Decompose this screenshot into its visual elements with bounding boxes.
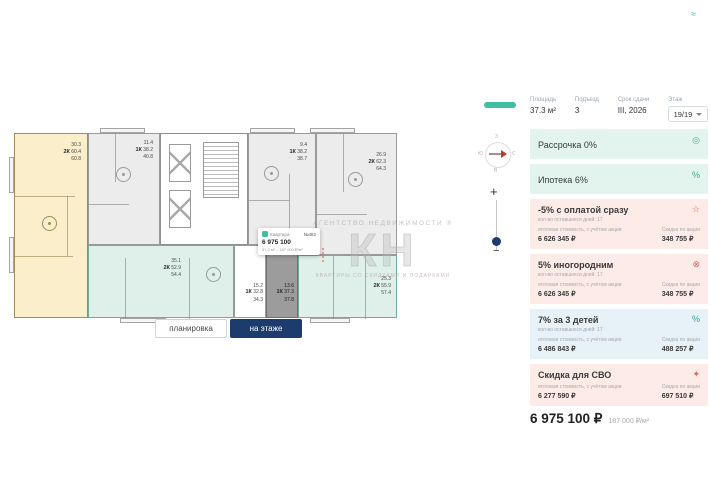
promo-row-svo[interactable]: Скидка для СВО итоговая стоимость, с учё… [530, 364, 708, 406]
promo-discount-col: Скидка по акции 697 510 ₽ [662, 384, 700, 400]
row-title: 5% иногородним [538, 260, 700, 270]
summary-entrance: Подъезд 3 [575, 97, 599, 115]
elevator-shaft [169, 190, 191, 228]
progress-pill [484, 102, 516, 108]
price-label: итоговая стоимость, с учётом акции [538, 337, 622, 343]
area-value: 37.3 м² [530, 106, 556, 115]
compass-west: З [495, 134, 498, 140]
percent-icon: % [692, 315, 700, 324]
compass-needle-head [501, 150, 507, 158]
discount-value: 488 257 ₽ [662, 345, 700, 353]
price-label: итоговая стоимость, с учётом акции [538, 384, 622, 390]
discount-value: 697 510 ₽ [662, 392, 700, 400]
zoom-out-button[interactable]: − [493, 245, 499, 257]
unit-total-area: 54.4 [163, 272, 181, 279]
interior-wall [89, 204, 129, 205]
interior-wall [333, 256, 334, 319]
apartment-sidebar: Площадь 37.3 м² Подъезд 3 Срок сдачи III… [530, 97, 708, 427]
mortgage-row[interactable]: Ипотека 6% % [530, 164, 708, 194]
unit-total-area: 38.7 [289, 156, 307, 163]
unit-type-area: 1К 38.2 [289, 149, 307, 156]
unit-total-area: 64.3 [368, 166, 386, 173]
tooltip-price: 6 975 100 [262, 239, 316, 246]
deadline-value: III, 2026 [618, 106, 649, 115]
total-price: 6 975 100 ₽ [530, 411, 602, 427]
deadline-label: Срок сдачи [618, 97, 649, 103]
unit-type-area: 2К 60.4 [63, 149, 81, 156]
installment-row[interactable]: Рассрочка 0% ◎ [530, 129, 708, 159]
unit-total-area: 37.8 [276, 297, 294, 304]
summary-floor: Этаж 19/19 [668, 97, 708, 122]
panorama-marker [116, 167, 131, 182]
tab-layout[interactable]: планировка [155, 319, 227, 338]
price-value: 6 626 345 ₽ [538, 290, 622, 298]
elevator-shaft [169, 144, 191, 182]
interior-wall [189, 258, 190, 319]
apartment-tooltip[interactable]: Квартира №482 6 975 100 37.3 м² – 187 00… [258, 228, 320, 255]
entrance-value: 3 [575, 106, 599, 115]
unit-type-area: 2К 62.3 [368, 159, 386, 166]
floor-plan: 30.3 2К 60.4 60.8 11.4 1К 38.2 40.8 [14, 133, 398, 318]
promo-row-nonresident[interactable]: 5% иногородним кол-во оставшихся дней: 1… [530, 254, 708, 304]
panorama-marker [206, 267, 221, 282]
interior-wall [249, 200, 289, 201]
days-left: кол-во оставшихся дней: 17 [538, 327, 700, 333]
tooltip-meta: 37.3 м² – 187 000 ₽/м² [262, 247, 316, 252]
promo-discount-col: Скидка по акции 488 257 ₽ [662, 337, 700, 353]
promo-price-col: итоговая стоимость, с учётом акции 6 626… [538, 227, 622, 243]
row-title: 7% за 3 детей [538, 315, 700, 325]
floor-label: Этаж [668, 97, 708, 103]
area-label: Площадь [530, 97, 556, 103]
unit-total-area: 60.8 [63, 156, 81, 163]
interior-wall [67, 196, 68, 256]
apartment-unit-2k-62[interactable]: 26.9 2К 62.3 64.3 [316, 133, 397, 255]
price-value: 6 277 590 ₽ [538, 392, 622, 400]
unit-type-area: 2К 52.9 [163, 265, 181, 272]
promo-discount-col: Скидка по акции 348 755 ₽ [662, 282, 700, 298]
promo-row-pay-now[interactable]: -5% с оплатой сразу кол-во оставшихся дн… [530, 199, 708, 249]
elevator-stair-core [160, 133, 248, 245]
staircase [203, 142, 239, 198]
days-left: кол-во оставшихся дней: 17 [538, 217, 700, 223]
tab-on-floor[interactable]: на этаже [230, 319, 302, 338]
interior-wall [343, 134, 344, 192]
unit-type-area: 1К 37.3 [276, 289, 294, 296]
discount-label: Скидка по акции [662, 282, 700, 288]
summary-area: Площадь 37.3 м² [530, 97, 556, 115]
price-value: 6 626 345 ₽ [538, 235, 622, 243]
sparkle-icon: ✦ [692, 370, 700, 379]
zoom-in-button[interactable]: + [490, 184, 498, 199]
compass-east: В [494, 168, 497, 174]
row-title: Ипотека 6% [538, 175, 588, 185]
promo-row-three-children[interactable]: 7% за 3 детей кол-во оставшихся дней: 17… [530, 309, 708, 359]
discount-value: 348 755 ₽ [662, 235, 700, 243]
entrance-label: Подъезд [575, 97, 599, 103]
installment-circle-icon: ◎ [692, 136, 700, 145]
compass-south: Ю [478, 151, 483, 157]
interior-wall [15, 196, 75, 197]
panorama-marker [348, 172, 363, 187]
promo-price-col: итоговая стоимость, с учётом акции 6 277… [538, 384, 622, 400]
apartment-unit-2k-52[interactable]: 35.1 2К 52.9 54.4 [88, 245, 234, 318]
compass-north: С [512, 151, 516, 157]
panorama-marker [264, 166, 279, 181]
row-title: -5% с оплатой сразу [538, 205, 700, 215]
unit-total-area: 57.4 [373, 290, 391, 297]
tooltip-label: Квартира [270, 232, 302, 237]
apartment-icon [262, 231, 268, 237]
promo-price-col: итоговая стоимость, с учётом акции 6 626… [538, 282, 622, 298]
balcony [310, 318, 350, 323]
logo-mark: ≈ [691, 9, 696, 19]
floor-select[interactable]: 19/19 [668, 106, 708, 122]
promo-discount-col: Скидка по акции 348 755 ₽ [662, 227, 700, 243]
discount-value: 348 755 ₽ [662, 290, 700, 298]
apartment-summary: Площадь 37.3 м² Подъезд 3 Срок сдачи III… [530, 97, 708, 122]
tooltip-number: №482 [304, 232, 316, 237]
apartment-unit-1k-38a[interactable]: 11.4 1К 38.2 40.8 [88, 133, 160, 245]
floor-value: 19/19 [674, 110, 693, 119]
unit-type-area: 1К 32.8 [245, 289, 263, 296]
apartment-unit-2k-55[interactable]: 25.3 2К 55.9 57.4 [298, 255, 397, 318]
percent-icon: % [692, 171, 700, 180]
discount-label: Скидка по акции [662, 384, 700, 390]
unit-type-area: 2К 55.9 [373, 283, 391, 290]
discount-label: Скидка по акции [662, 337, 700, 343]
price-per-m2: 187 000 ₽/м² [608, 417, 649, 425]
row-title: Рассрочка 0% [538, 140, 597, 150]
price-label: итоговая стоимость, с учётом акции [538, 282, 622, 288]
compass-circle [485, 142, 511, 168]
promo-price-col: итоговая стоимость, с учётом акции 6 486… [538, 337, 622, 353]
total-price-block: 6 975 100 ₽ 187 000 ₽/м² [530, 411, 708, 427]
unit-total-area: 40.8 [135, 154, 153, 161]
days-left: кол-во оставшихся дней: 17 [538, 272, 700, 278]
chevron-down-icon [696, 113, 702, 116]
compass: З С В Ю [478, 134, 516, 174]
discount-label: Скидка по акции [662, 227, 700, 233]
unit-type-area: 1К 38.2 [135, 147, 153, 154]
no-entry-icon: ⊗ [692, 260, 700, 269]
apartment-picker-page: 30.3 2К 60.4 60.8 11.4 1К 38.2 40.8 [0, 0, 710, 500]
interior-wall [15, 256, 73, 257]
summary-deadline: Срок сдачи III, 2026 [618, 97, 649, 115]
panorama-marker [42, 216, 57, 231]
row-title: Скидка для СВО [538, 370, 700, 380]
unit-total-area: 34.3 [245, 297, 263, 304]
apartment-unit-2k-60[interactable]: 30.3 2К 60.4 60.8 [14, 133, 88, 318]
apartment-unit-1k-32[interactable]: 15.2 1К 32.8 34.3 [234, 245, 266, 318]
interior-wall [125, 258, 126, 319]
price-label: итоговая стоимость, с учётом акции [538, 227, 622, 233]
interior-wall [365, 256, 366, 319]
star-icon[interactable]: ☆ [692, 205, 700, 214]
price-value: 6 486 843 ₽ [538, 345, 622, 353]
interior-wall [317, 214, 367, 215]
